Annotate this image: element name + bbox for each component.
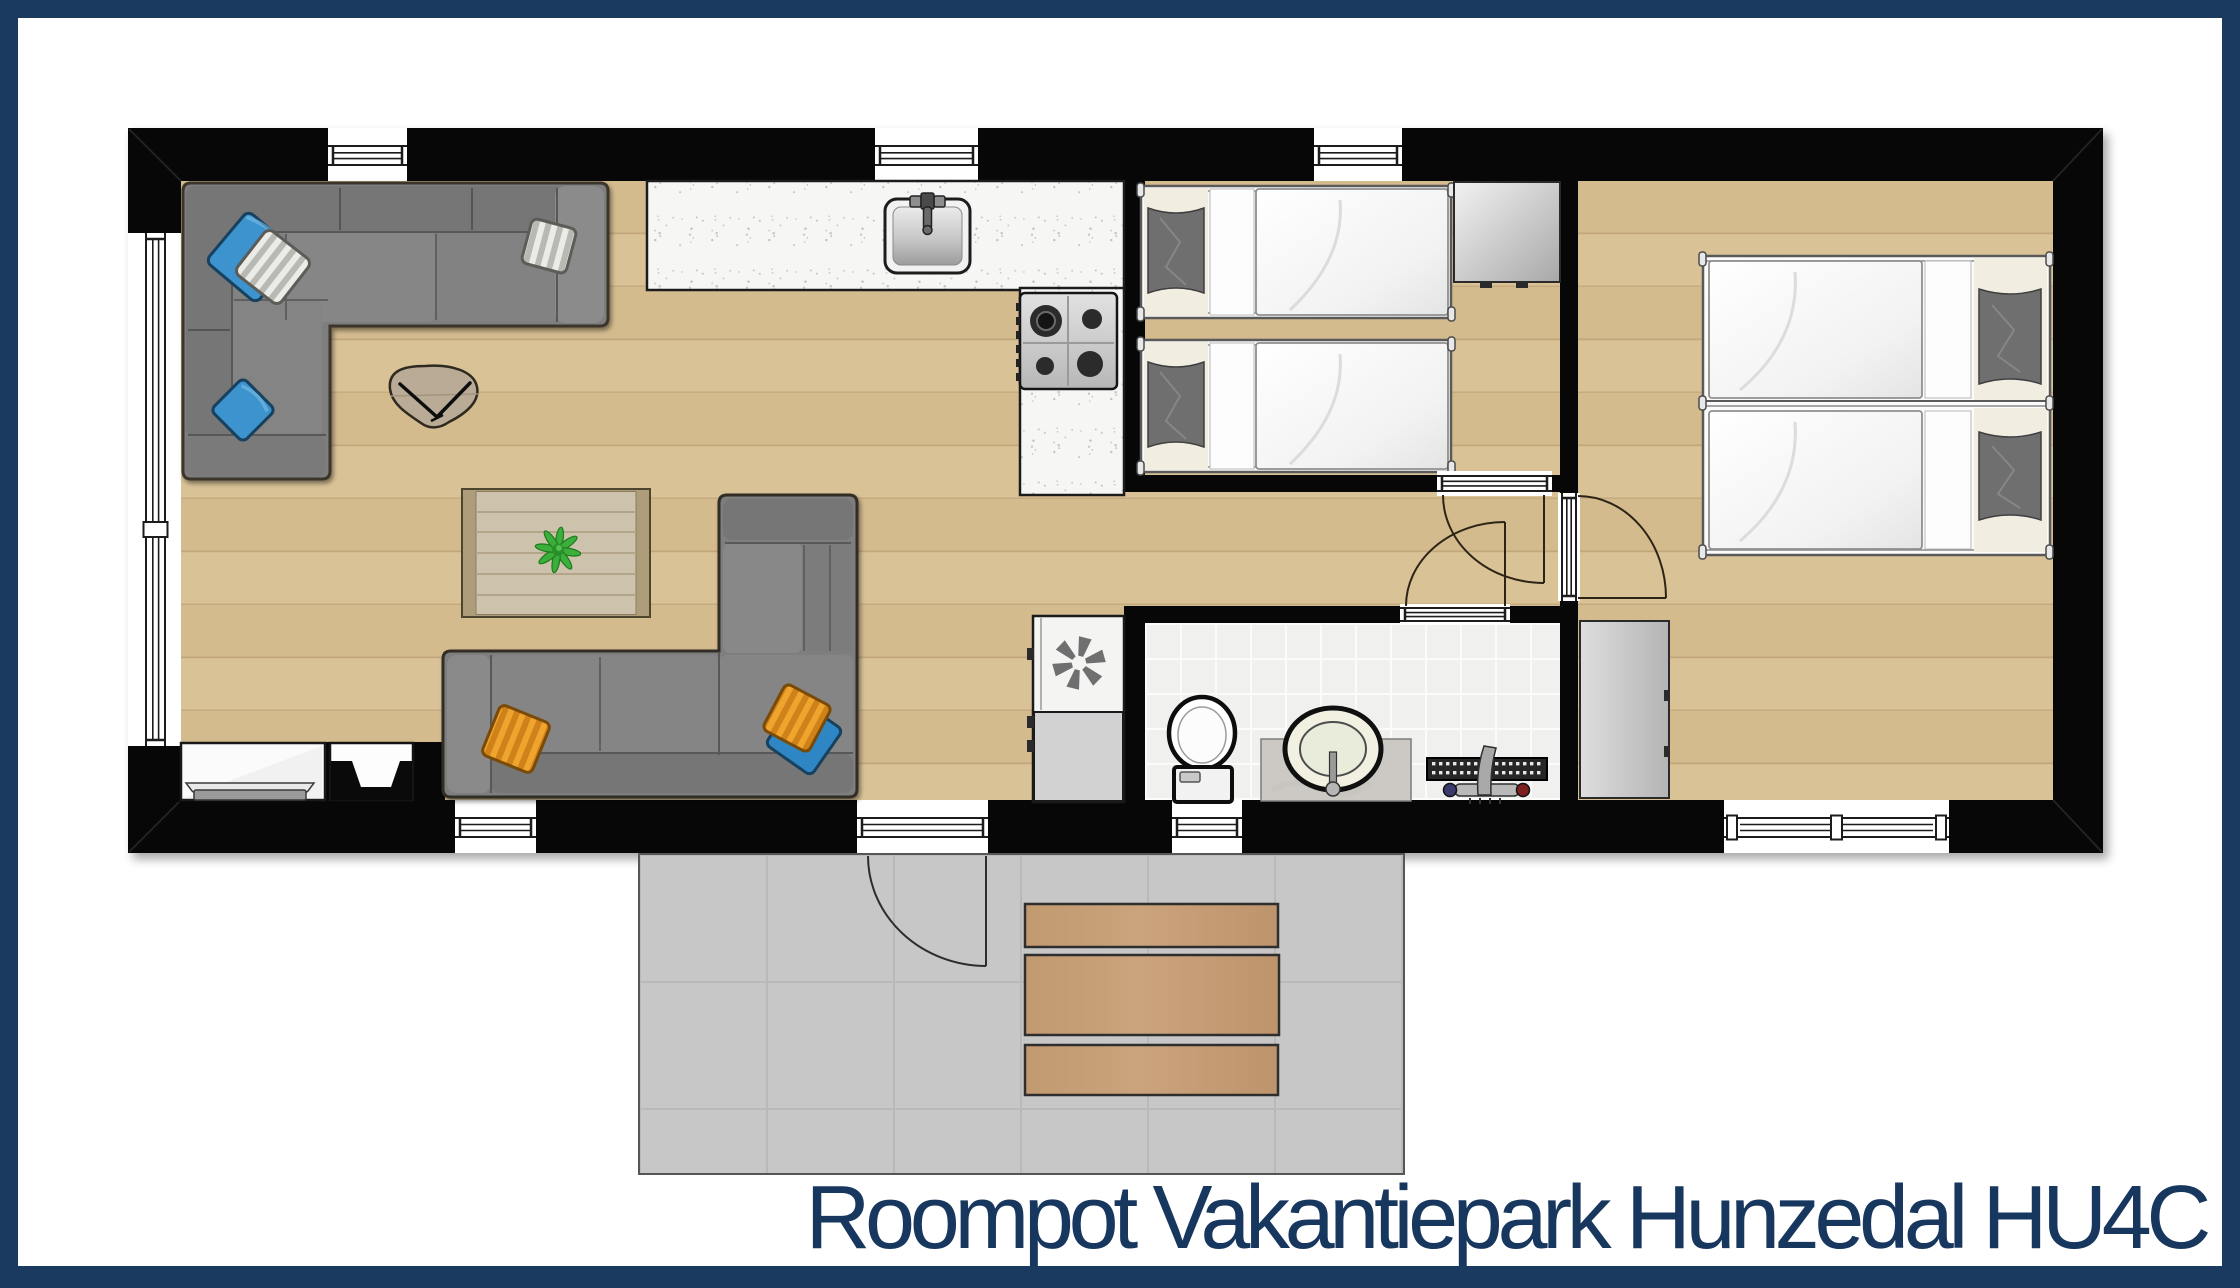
- svg-text:Roompot Vakantiepark Hunzedal: Roompot Vakantiepark Hunzedal HU4C: [805, 1168, 2208, 1268]
